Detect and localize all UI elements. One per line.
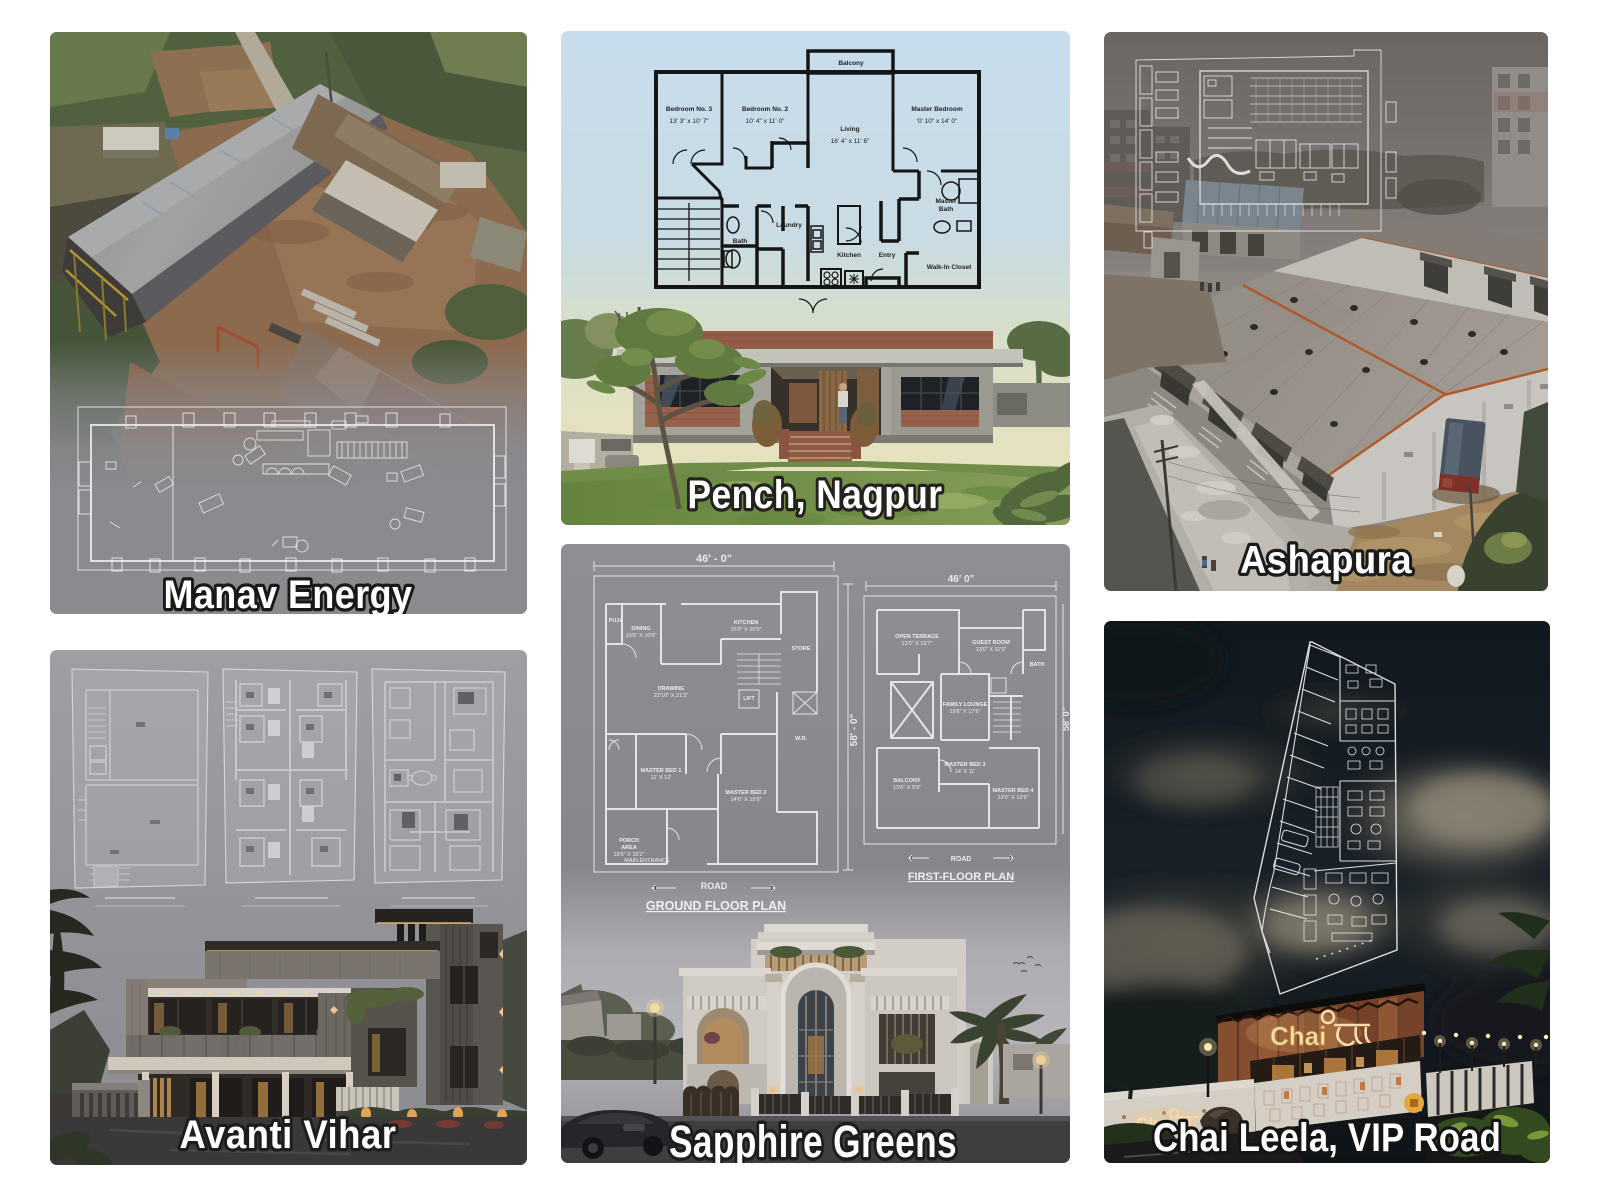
svg-text:11' X 13': 11' X 13'	[651, 775, 672, 781]
svg-text:22'10" X 21'3": 22'10" X 21'3"	[654, 693, 688, 699]
svg-text:46' 0": 46' 0"	[948, 574, 975, 585]
svg-text:PUJA: PUJA	[609, 618, 624, 624]
svg-text:Pench, Nagpur: Pench, Nagpur	[688, 473, 943, 517]
svg-text:FAMILY LOUNGE: FAMILY LOUNGE	[943, 702, 988, 708]
svg-text:'0' 10" x 14' 0": '0' 10" x 14' 0"	[917, 118, 958, 125]
svg-text:FIRST-FLOOR PLAN: FIRST-FLOOR PLAN	[908, 871, 1014, 883]
svg-text:OPEN TERRACE: OPEN TERRACE	[895, 634, 939, 640]
svg-text:58' 0": 58' 0"	[1061, 707, 1070, 731]
svg-text:14' X 11': 14' X 11'	[955, 769, 976, 775]
svg-text:Living: Living	[840, 126, 859, 133]
svg-text:BATH: BATH	[1030, 662, 1045, 668]
svg-text:Sapphire Greens: Sapphire Greens	[669, 1116, 957, 1163]
svg-text:19'6" X 17'6": 19'6" X 17'6"	[949, 709, 980, 715]
svg-text:MASTER BED 3: MASTER BED 3	[945, 762, 986, 768]
svg-text:GROUND FLOOR PLAN: GROUND FLOOR PLAN	[646, 899, 786, 913]
svg-text:Ashapura: Ashapura	[1240, 539, 1412, 582]
svg-text:10'6" X 10'9": 10'6" X 10'9"	[625, 633, 656, 639]
svg-text:Chai: Chai	[1270, 1021, 1326, 1051]
svg-text:10' 4" x 11' 0": 10' 4" x 11' 0"	[746, 118, 785, 125]
svg-text:13'0" X 11'9": 13'0" X 11'9"	[976, 647, 1007, 653]
svg-text:13'0" X 13'9": 13'0" X 13'9"	[997, 795, 1028, 801]
svg-text:Bedroom No. 2: Bedroom No. 2	[742, 106, 789, 113]
svg-text:Kitchen: Kitchen	[837, 252, 861, 259]
svg-text:Laundry: Laundry	[776, 222, 802, 229]
svg-text:Avanti Vihar: Avanti Vihar	[180, 1113, 397, 1157]
svg-text:MASTER BED 4: MASTER BED 4	[993, 788, 1035, 794]
svg-text:GUEST ROOM: GUEST ROOM	[972, 640, 1010, 646]
svg-text:DRAWING: DRAWING	[658, 686, 685, 692]
svg-text:BALCONY: BALCONY	[893, 778, 921, 784]
svg-text:13'6" X 5'9": 13'6" X 5'9"	[893, 785, 921, 791]
svg-text:13' 3" x 10' 7": 13' 3" x 10' 7"	[669, 118, 709, 125]
svg-text:15'0" X 10'9": 15'0" X 10'9"	[730, 627, 761, 633]
svg-text:PORCH: PORCH	[619, 838, 639, 844]
svg-text:Entry: Entry	[879, 252, 896, 259]
svg-text:58' - 0": 58' - 0"	[849, 713, 860, 746]
svg-text:W.R.: W.R.	[795, 736, 807, 742]
svg-text:Bedroom No. 3: Bedroom No. 3	[666, 106, 713, 113]
svg-text:Master: Master	[936, 198, 957, 205]
svg-text:KITCHEN: KITCHEN	[734, 620, 758, 626]
svg-text:ROAD: ROAD	[951, 856, 972, 863]
svg-text:Chai Leela, VIP Road: Chai Leela, VIP Road	[1153, 1116, 1501, 1160]
svg-text:STORE: STORE	[792, 646, 811, 652]
svg-text:DINING: DINING	[631, 626, 650, 632]
svg-text:16' 4" x 11' 6": 16' 4" x 11' 6"	[831, 138, 870, 145]
svg-text:MASTER BED 1: MASTER BED 1	[641, 768, 682, 774]
svg-text:14'6" X 15'9": 14'6" X 15'9"	[730, 797, 761, 803]
svg-text:AREA: AREA	[621, 845, 637, 851]
svg-text:46' - 0": 46' - 0"	[696, 553, 732, 565]
svg-text:Bath: Bath	[939, 206, 953, 213]
svg-text:Master Bedroom: Master Bedroom	[911, 106, 963, 113]
svg-text:MASTER BED 2: MASTER BED 2	[726, 790, 767, 796]
svg-text:ROAD: ROAD	[701, 881, 728, 891]
svg-text:MAIN ENTRANCE: MAIN ENTRANCE	[624, 858, 670, 864]
svg-text:Walk-In Closet: Walk-In Closet	[927, 264, 972, 271]
svg-text:LIFT: LIFT	[743, 696, 755, 702]
svg-text:13'0" X 13'7": 13'0" X 13'7"	[901, 641, 932, 647]
svg-text:Balcony: Balcony	[838, 60, 864, 67]
svg-text:Bath: Bath	[733, 238, 747, 245]
svg-text:Manav Energy: Manav Energy	[164, 573, 413, 614]
